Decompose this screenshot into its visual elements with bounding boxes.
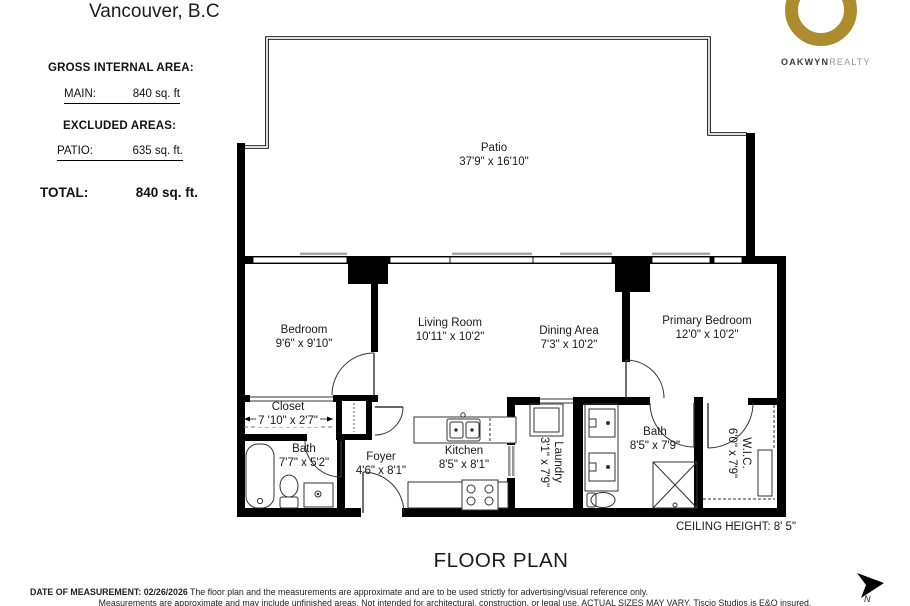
toilet-1 xyxy=(280,475,298,508)
total-area-value: 840 sq. ft. xyxy=(136,185,198,200)
room-label-bath1: Bath 7'7" x 5'2" xyxy=(279,442,329,470)
room-label-wic: W.I.C. 6'0" x 7'9" xyxy=(725,428,753,478)
room-label-bedroom: Bedroom 9'6" x 9'10" xyxy=(276,323,333,351)
room-label-living-room: Living Room 10'11" x 10'2" xyxy=(416,316,485,344)
floor-plan-page: Vancouver, B.C GROSS INTERNAL AREA: MAIN… xyxy=(0,0,910,606)
toilet-2 xyxy=(587,493,615,508)
entry-door xyxy=(363,472,404,513)
room-label-patio: Patio 37'9" x 16'10" xyxy=(459,141,528,169)
brand-bold: OAKWYN xyxy=(781,57,829,67)
room-label-kitchen: Kitchen 8'5" x 8'1" xyxy=(439,444,489,472)
primary-bedroom-door xyxy=(626,360,664,398)
room-label-foyer: Foyer 4'6" x 8'1" xyxy=(356,450,406,478)
plan-title: FLOOR PLAN xyxy=(434,549,569,573)
main-area-value: 840 sq. ft xyxy=(133,88,180,100)
patio-area-value: 635 sq. ft. xyxy=(132,145,183,157)
total-area-row: TOTAL: 840 sq. ft. xyxy=(40,185,198,200)
ceiling-height-note: CEILING HEIGHT: 8' 5" xyxy=(676,521,796,533)
brand-light: REALTY xyxy=(829,57,871,67)
gross-area-heading: GROSS INTERNAL AREA: xyxy=(48,62,194,74)
main-area-row: MAIN: 840 sq. ft xyxy=(64,88,180,104)
room-label-primary-bedroom: Primary Bedroom 12'0" x 10'2" xyxy=(662,314,751,342)
vanity-1 xyxy=(304,483,333,507)
total-area-label: TOTAL: xyxy=(40,185,88,200)
kitchen-counter xyxy=(408,480,508,510)
room-label-laundry: Laundry 3'1" x 7'9" xyxy=(537,437,565,487)
hall-closet-door xyxy=(375,407,403,435)
bedroom-door xyxy=(332,353,374,395)
door-swings xyxy=(305,353,753,513)
disclaimer-line-1: DATE OF MEASUREMENT: 02/26/2026 The floo… xyxy=(30,587,648,597)
room-label-closet: Closet 7 '10" x 2'7" xyxy=(256,400,320,428)
shower xyxy=(653,462,697,508)
room-label-bath2: Bath 8'5" x 7'9" xyxy=(630,425,680,453)
kitchen-island xyxy=(414,413,516,443)
vanity-2 xyxy=(585,404,618,491)
patio-railing xyxy=(244,38,747,147)
window-sills xyxy=(300,253,710,256)
disclaimer-line-2: Measurements are approximate and may inc… xyxy=(0,598,910,606)
windows xyxy=(253,257,742,263)
measurement-date: DATE OF MEASUREMENT: 02/26/2026 xyxy=(30,587,188,597)
brand-name: OAKWYNREALTY xyxy=(781,57,863,67)
room-label-dining-area: Dining Area 7'3" x 10'2" xyxy=(539,324,598,352)
tub-faucet xyxy=(257,498,262,503)
main-area-label: MAIN: xyxy=(64,88,96,100)
patio-area-label: PATIO: xyxy=(57,145,93,157)
washer-dryer xyxy=(530,404,563,436)
patio-area-row: PATIO: 635 sq. ft. xyxy=(57,145,183,161)
stove xyxy=(462,480,498,510)
page-title: Vancouver, B.C xyxy=(89,1,220,23)
excluded-areas-heading: EXCLUDED AREAS: xyxy=(63,120,176,132)
duct-shaft xyxy=(336,395,372,440)
